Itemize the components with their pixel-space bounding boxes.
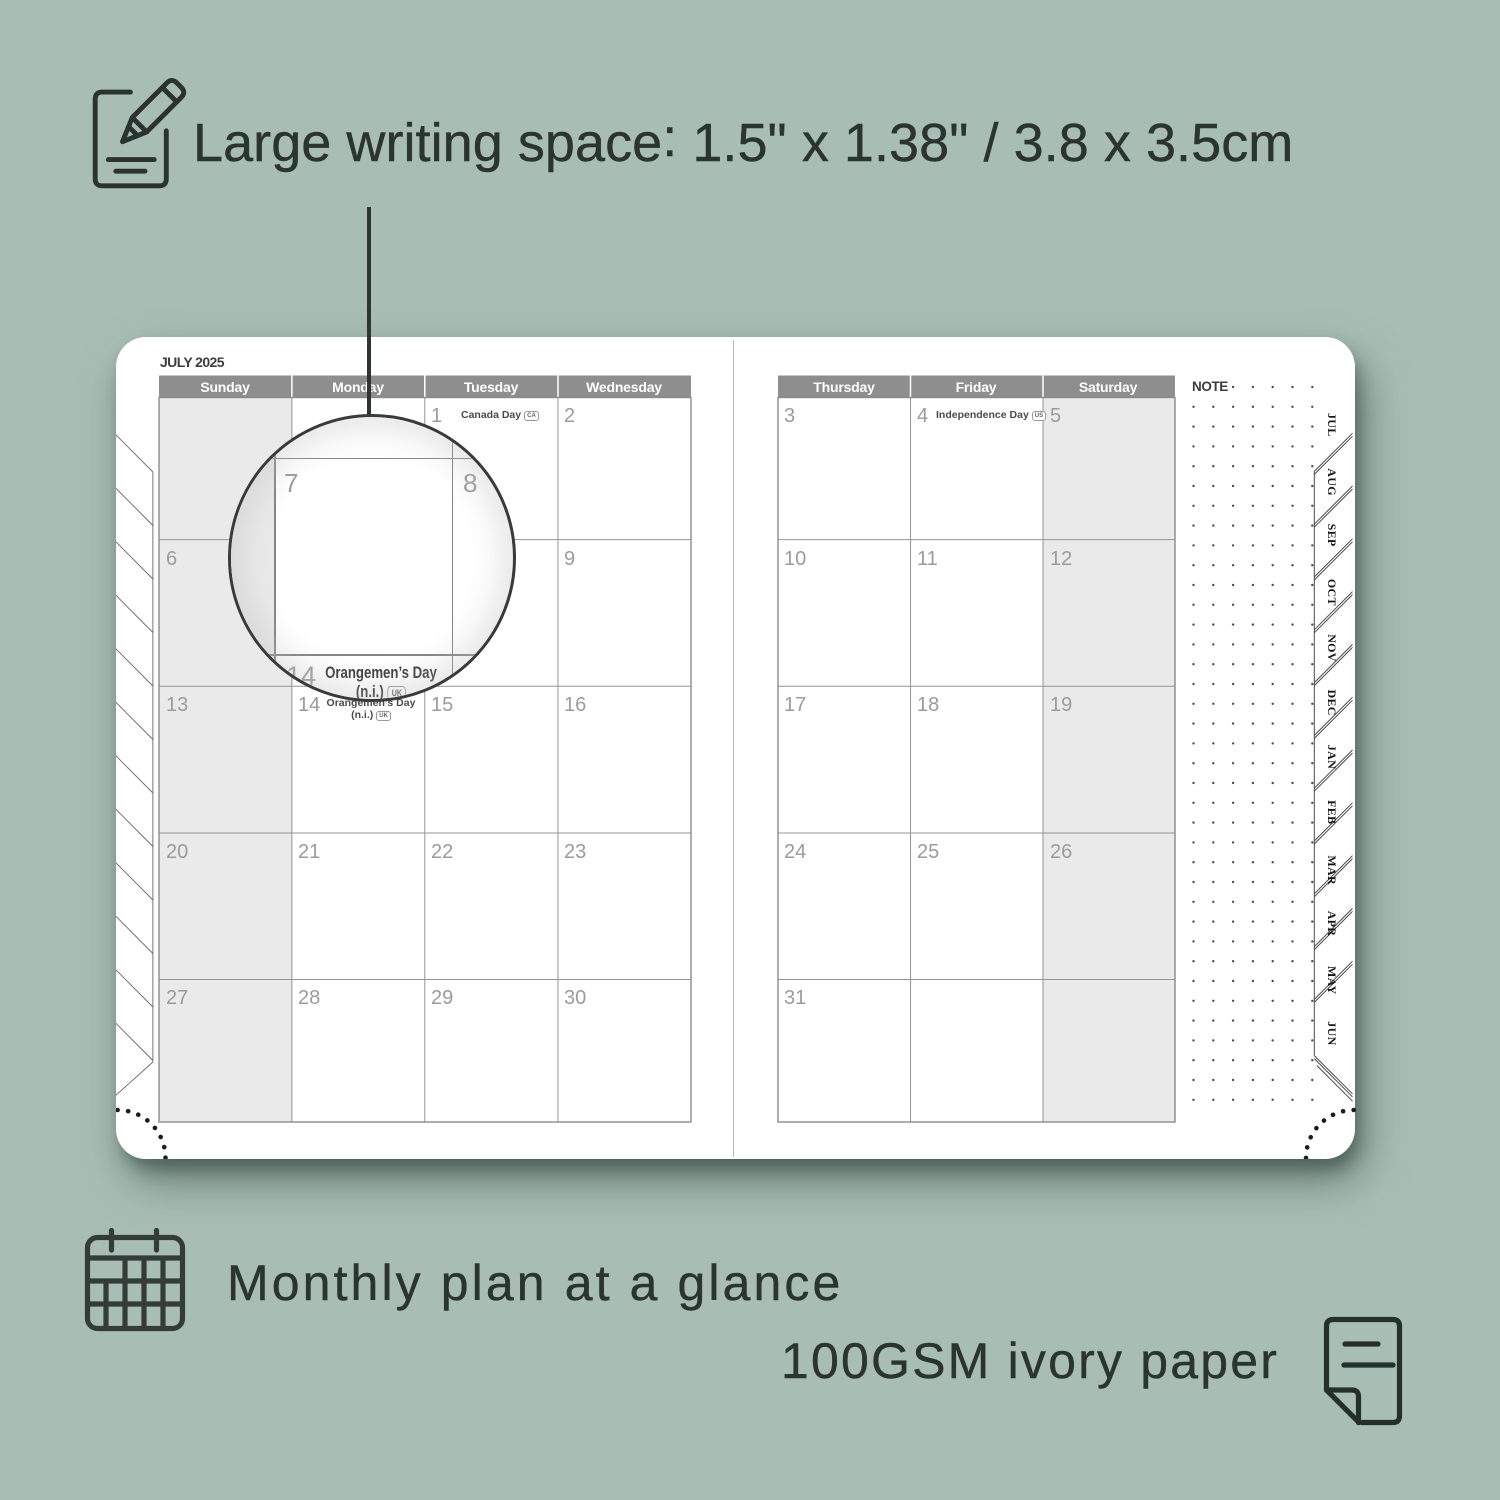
svg-text:SEP: SEP [1325, 524, 1339, 547]
svg-text:FEB: FEB [1325, 800, 1339, 824]
svg-text:JAN: JAN [1325, 745, 1339, 769]
svg-text:MAR: MAR [1325, 855, 1339, 885]
svg-text:JUL: JUL [1325, 413, 1339, 437]
svg-text:OCT: OCT [1325, 579, 1339, 606]
svg-text:JUN: JUN [1325, 1021, 1339, 1045]
svg-text:AUG: AUG [1325, 468, 1339, 496]
svg-text:NOV: NOV [1325, 634, 1339, 662]
svg-text:DEC: DEC [1325, 690, 1339, 716]
svg-text:APR: APR [1325, 911, 1339, 937]
svg-text:MAY: MAY [1325, 966, 1339, 994]
